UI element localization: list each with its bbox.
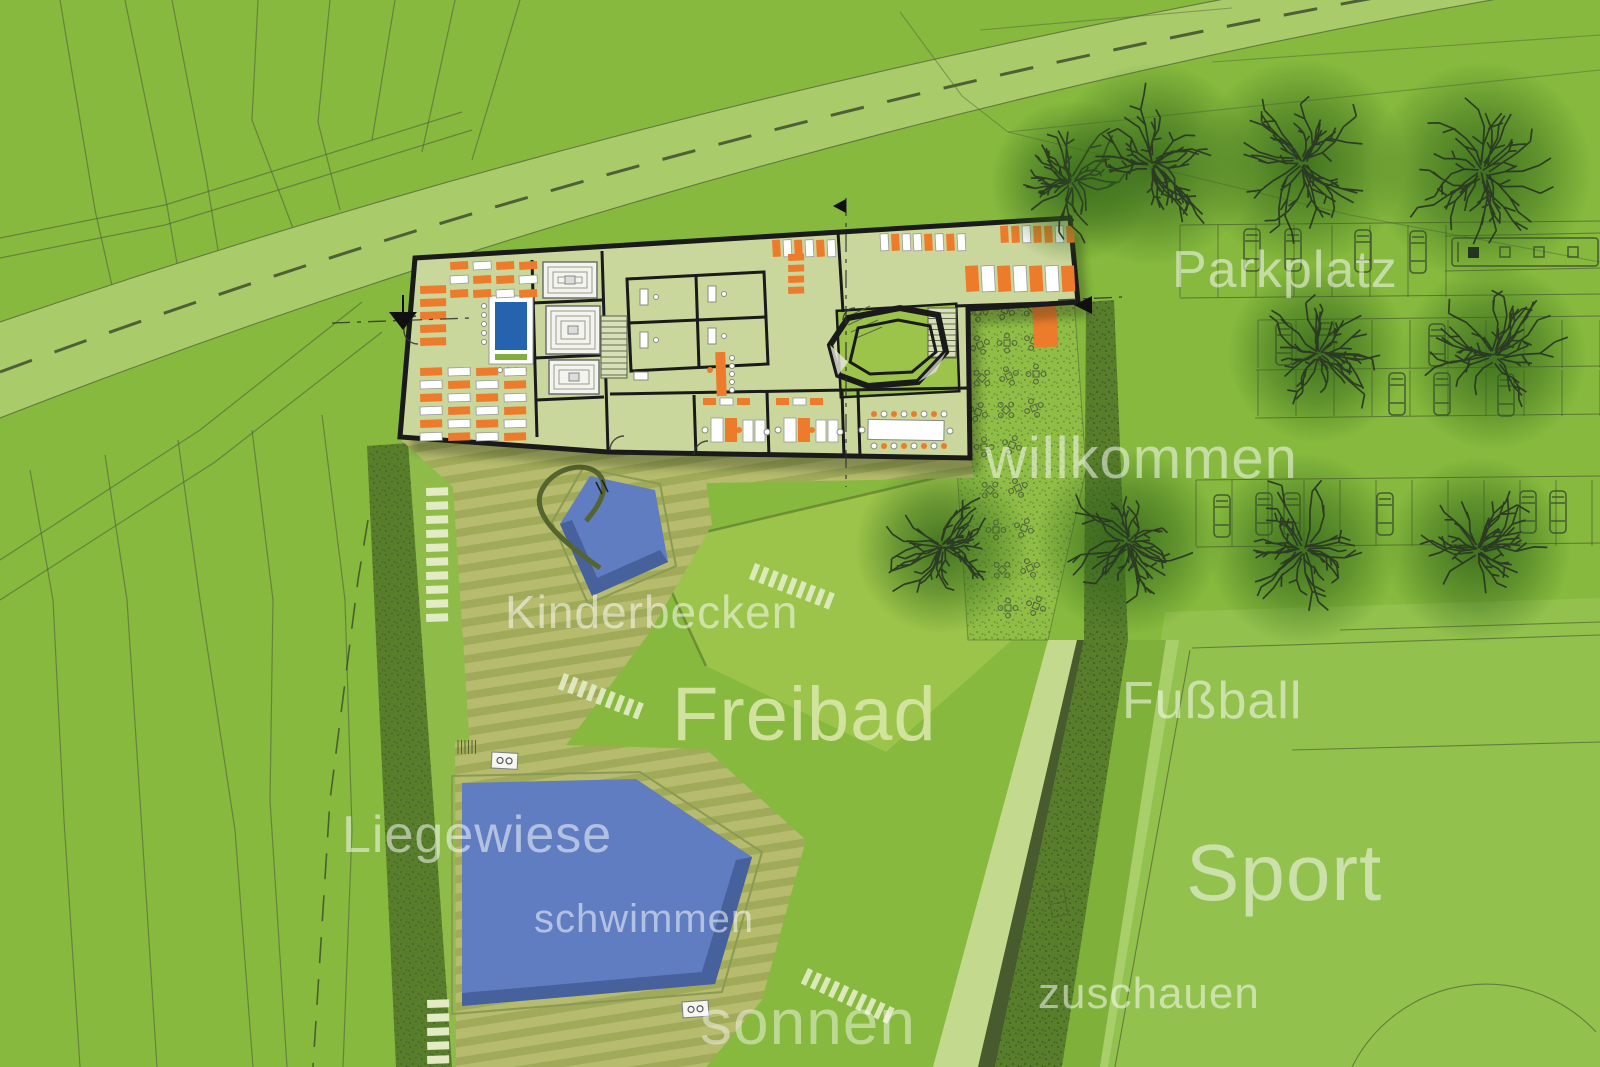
bench (827, 240, 836, 257)
bench (788, 264, 804, 272)
label-fussball: Fußball (1122, 672, 1302, 730)
sun-lounger (427, 1055, 449, 1064)
label-zuschauen: zuschauen (1038, 969, 1260, 1018)
bench (924, 234, 933, 251)
bench (902, 234, 911, 251)
bench (504, 406, 526, 415)
sun-lounger (426, 557, 448, 566)
sun-lounger (426, 529, 448, 538)
sun-lounger (426, 585, 448, 594)
label-schwimmen: schwimmen (534, 897, 754, 941)
bench (420, 419, 442, 428)
bench (476, 367, 498, 376)
bench (788, 286, 804, 294)
sun-lounger (426, 501, 448, 510)
bench (946, 234, 955, 251)
bench (450, 289, 468, 298)
bench (420, 285, 446, 294)
bench (450, 275, 468, 284)
site-plan-svg: Parkplatz willkommen Kinderbecken Freiba… (0, 0, 1600, 1067)
label-freibad: Freibad (672, 672, 937, 757)
bench (519, 275, 537, 284)
bench (448, 419, 470, 428)
bench (420, 337, 446, 346)
bench (448, 367, 470, 376)
tree-icon (1385, 457, 1571, 643)
sun-lounger (426, 613, 448, 622)
bench (420, 380, 442, 389)
sun-lounger (426, 487, 448, 496)
bench (448, 432, 470, 441)
bench (788, 275, 804, 283)
bench (957, 234, 966, 251)
bench (450, 261, 468, 270)
pool-ladder-icon (491, 752, 518, 769)
shower-rooms (543, 262, 600, 394)
bench (476, 406, 498, 415)
label-kinderbecken: Kinderbecken (505, 586, 798, 638)
bench (420, 324, 446, 333)
bench (891, 234, 900, 251)
sun-lounger (427, 999, 449, 1008)
tree-icon (1372, 62, 1592, 282)
bench (997, 265, 1011, 292)
courtyard (830, 305, 958, 396)
bench (476, 380, 498, 389)
bench (1013, 265, 1027, 292)
site-plan-stage: Parkplatz willkommen Kinderbecken Freiba… (0, 0, 1600, 1067)
label-liegewiese: Liegewiese (342, 806, 612, 864)
bench (420, 298, 446, 307)
sun-lounger (427, 1013, 449, 1022)
sun-lounger (427, 1027, 449, 1036)
bench (476, 432, 498, 441)
sun-lounger (426, 543, 448, 552)
bench (504, 380, 526, 389)
bench (420, 393, 442, 402)
bench (476, 419, 498, 428)
bench (788, 253, 804, 261)
bench (496, 289, 514, 298)
label-sonnen: sonnen (700, 986, 916, 1058)
bench (448, 406, 470, 415)
bench (504, 393, 526, 402)
bench (504, 367, 526, 376)
bench (805, 240, 814, 257)
sun-lounger (426, 599, 448, 608)
bench (1061, 265, 1075, 292)
bench (473, 261, 491, 270)
bench (420, 406, 442, 415)
tree-icon (1401, 264, 1587, 450)
bench (935, 234, 944, 251)
label-willkommen: willkommen (984, 426, 1298, 491)
staircase (601, 316, 627, 378)
bench (448, 380, 470, 389)
bench (1045, 265, 1059, 292)
bench (816, 240, 825, 257)
bench (1029, 265, 1043, 292)
bench (473, 275, 491, 284)
bench (519, 261, 537, 270)
sun-lounger (427, 1041, 449, 1050)
bench (496, 261, 514, 270)
bench (504, 432, 526, 441)
label-sport: Sport (1186, 828, 1382, 917)
bench (913, 234, 922, 251)
bench (981, 265, 995, 292)
bench (772, 240, 781, 257)
bench (519, 289, 537, 298)
sun-lounger (426, 515, 448, 524)
bench (473, 289, 491, 298)
label-parkplatz: Parkplatz (1172, 241, 1398, 299)
bench (965, 265, 979, 292)
bench (476, 393, 498, 402)
counter-pool (482, 296, 534, 373)
bench (496, 275, 514, 284)
bench (420, 432, 442, 441)
bench (420, 367, 442, 376)
bench (504, 419, 526, 428)
bench (880, 234, 889, 251)
sun-lounger (426, 571, 448, 580)
bench (448, 393, 470, 402)
